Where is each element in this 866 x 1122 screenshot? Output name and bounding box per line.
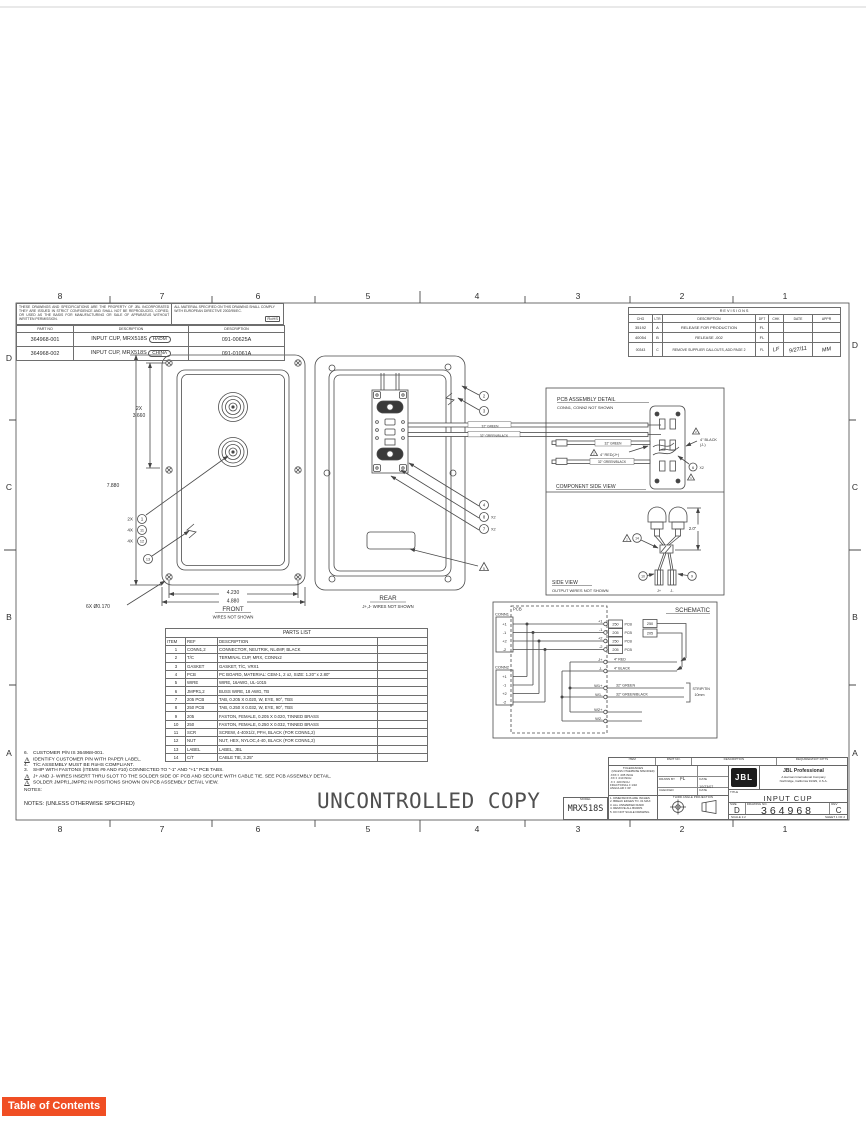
speakon-connector-front-1 bbox=[219, 393, 248, 422]
svg-text:32" GREEN: 32" GREEN bbox=[605, 441, 623, 445]
svg-text:PCB: PCB bbox=[625, 623, 633, 627]
signature: LF bbox=[772, 346, 779, 353]
wire-greenblack-label: 32" GREEN/BLACK bbox=[480, 434, 509, 438]
table-of-contents-link[interactable]: Table of Contents bbox=[2, 1097, 106, 1116]
hole-note: 6X Ø0.170 bbox=[86, 604, 110, 610]
balloon-cable-tie: 14 bbox=[635, 537, 639, 541]
standard-notes-box: 1. DIMENSIONS ARE INCHES 2. BREAK EDGES … bbox=[608, 795, 658, 820]
svg-text:10mm: 10mm bbox=[695, 693, 705, 697]
table-row: 00343 C REMOVE SUPPLIER CALLOUTS, ADD PA… bbox=[629, 343, 841, 357]
jbl-label-outline bbox=[367, 532, 415, 549]
svg-text:(J-): (J-) bbox=[700, 443, 706, 447]
pcb-assembly-detail: PCB ASSEMBLY DETAIL CONN1, CONN2 NOT SHO… bbox=[546, 388, 724, 595]
svg-text:B: B bbox=[6, 612, 12, 622]
model-number: MRX518S bbox=[564, 804, 607, 814]
jumper-wires bbox=[653, 443, 679, 455]
table-row: 11SCRSCREW, 4-40X1/2, PFH, BLACK (FOR CO… bbox=[166, 728, 428, 736]
note-1: SOLDER JMPR1,JMPR2 IN POSITIONS SHOWN ON… bbox=[33, 780, 219, 785]
svg-text:W2-: W2- bbox=[595, 716, 603, 721]
balloon-250-faston: 10 bbox=[641, 575, 645, 579]
table-row: 2T/CTERMINAL CUP, MRX, CONNx2 bbox=[166, 654, 428, 662]
side-view-caption: SIDE VIEW bbox=[552, 580, 578, 586]
black-wire-label: 4" BLACK bbox=[700, 438, 717, 442]
jbl-logo: JBL bbox=[731, 768, 757, 787]
svg-text:X2: X2 bbox=[700, 466, 704, 470]
part-number-table: PART NO DESCRIPTION DESCRIPTION 364968-0… bbox=[16, 325, 285, 361]
rohs-badge: RoHS bbox=[265, 316, 280, 322]
balloon-tc: 2 bbox=[483, 394, 486, 399]
svg-text:2: 2 bbox=[593, 452, 595, 456]
svg-text:-1: -1 bbox=[503, 630, 507, 635]
svg-text:J+: J+ bbox=[598, 657, 603, 662]
svg-text:A: A bbox=[852, 748, 858, 758]
svg-text:7: 7 bbox=[160, 291, 165, 301]
strip-tin-note: STRIP/TIN bbox=[693, 687, 711, 691]
pcb-detail-title: PCB ASSEMBLY DETAIL bbox=[557, 397, 616, 403]
wire-green-label: 32" GREEN bbox=[482, 424, 500, 428]
svg-text:7: 7 bbox=[160, 824, 165, 834]
table-row: 6JMPR1,2BUSS WIRE, 18 AWG, TB bbox=[166, 687, 428, 695]
svg-text:8: 8 bbox=[58, 291, 63, 301]
svg-text:-2: -2 bbox=[503, 647, 507, 652]
balloon-screw: 11 bbox=[140, 529, 144, 533]
svg-text:2X: 2X bbox=[136, 406, 143, 412]
svg-text:X2: X2 bbox=[491, 516, 496, 520]
drawn-by-signature: FL bbox=[679, 775, 685, 781]
table-row: 364968-002 INPUT CUP, MRX518S CHINA 091-… bbox=[17, 347, 285, 361]
svg-text:4X: 4X bbox=[127, 539, 133, 544]
conn1-label: CONN1 bbox=[495, 612, 510, 617]
note-3: SHIP WITH FASTONS (ITEMS #9 AND #10) CON… bbox=[33, 768, 224, 773]
signature: MM bbox=[821, 346, 831, 354]
svg-text:5: 5 bbox=[366, 291, 371, 301]
svg-text:J+: J+ bbox=[657, 589, 662, 593]
svg-text:4: 4 bbox=[475, 291, 480, 301]
table-row: 10250FASTON, FEMALE, 0.250 X 0.032, TINN… bbox=[166, 720, 428, 728]
jbl-logo-box: JBL bbox=[728, 765, 760, 790]
rear-caption: REAR bbox=[379, 595, 397, 602]
svg-text:3: 3 bbox=[576, 824, 581, 834]
loose-250-faston: 250 bbox=[647, 622, 653, 626]
component-side-caption: COMPONENT SIDE VIEW bbox=[556, 484, 616, 490]
note1-triangle: 1 bbox=[24, 780, 33, 786]
far-side-squiggle bbox=[446, 393, 454, 405]
svg-text:8: 8 bbox=[58, 824, 63, 834]
table-row: 9205FASTON, FEMALE, 0.205 X 0.020, TINNE… bbox=[166, 712, 428, 720]
parts-list: PARTS LIST ITEM REF DESCRIPTION 1CONN1,2… bbox=[165, 628, 427, 762]
svg-text:-1: -1 bbox=[599, 627, 603, 632]
schematic: SCHEMATIC PCB CONN1 +1 -1 +2 -2 CONN2 +1… bbox=[493, 602, 717, 738]
note-4: T/C ASSEMBLY MUST BE RoHS COMPLIANT. bbox=[33, 763, 134, 768]
balloon-nut: 12 bbox=[140, 540, 144, 544]
svg-text:+1: +1 bbox=[502, 622, 507, 627]
svg-text:4X: 4X bbox=[127, 528, 133, 533]
dim-4230: 4.230 bbox=[227, 590, 240, 596]
svg-text:1: 1 bbox=[783, 291, 788, 301]
third-angle-box: THIRD ANGLE PROJECTION bbox=[657, 795, 729, 820]
svg-text:2: 2 bbox=[626, 538, 628, 542]
schematic-title: SCHEMATIC bbox=[675, 608, 711, 614]
svg-text:32" GREEN/BLACK: 32" GREEN/BLACK bbox=[598, 460, 627, 464]
qty-conn: 2X bbox=[127, 517, 133, 522]
svg-text:J+,J- WIRES NOT SHOWN: J+,J- WIRES NOT SHOWN bbox=[362, 604, 413, 609]
drawing-linework: 87 65 43 21 87 65 43 21 DC BA DC BA bbox=[0, 0, 866, 1122]
side-view: 2.0" 2 14 10 9 J+ J- SIDE VIEW OUTPUT WI… bbox=[552, 507, 701, 593]
svg-text:X2: X2 bbox=[491, 528, 496, 532]
front-caption: FRONT bbox=[222, 606, 244, 613]
signature-grid: DRAWN BY FL DATE 10/23/07 CHECKED DATE A… bbox=[657, 765, 729, 796]
svg-text:4: 4 bbox=[475, 824, 480, 834]
svg-text:+1: +1 bbox=[598, 619, 603, 624]
svg-text:WIRES NOT SHOWN: WIRES NOT SHOWN bbox=[213, 615, 254, 620]
svg-text:W1+: W1+ bbox=[594, 683, 603, 688]
note-5: IDENTIFY CUSTOMER P/N WITH PAPER LABEL. bbox=[33, 757, 141, 762]
dim-3660: 3.660 bbox=[133, 413, 146, 419]
svg-text:250: 250 bbox=[612, 623, 618, 627]
tolerances-box: TOLERANCES (UNLESS OTHERWISE SPECIFIED) … bbox=[608, 765, 658, 796]
material-notice: ALL MATERIAL SPECIFIED ON THIS DRAWING S… bbox=[172, 303, 284, 325]
svg-text:PCB: PCB bbox=[513, 607, 522, 612]
table-row: 5WIREWIRE, 16AWG, UL-1015 bbox=[166, 679, 428, 687]
svg-text:D: D bbox=[852, 340, 858, 350]
table-row: 12NUTNUT, HEX, NYLOC,4-40, BLACK (FOR CO… bbox=[166, 737, 428, 745]
table-row: 1CONN1,2CONNECTOR, NEUTRIK, NL4MP, BLACK bbox=[166, 646, 428, 654]
table-row: 4PCBPC BOARD, MATERIAL: CEM-1, 2 oz, SIZ… bbox=[166, 670, 428, 678]
dim-4880: 4.880 bbox=[227, 598, 240, 604]
svg-text:4" RED: 4" RED bbox=[614, 658, 626, 662]
balloon-jumper: 6 bbox=[692, 466, 694, 470]
model-box: MODEL MRX518S bbox=[563, 797, 608, 820]
svg-text:5: 5 bbox=[483, 567, 485, 571]
svg-text:6: 6 bbox=[256, 291, 261, 301]
balloon-205pcb: 7 bbox=[483, 527, 486, 532]
svg-text:J-: J- bbox=[599, 666, 603, 671]
svg-text:C: C bbox=[6, 482, 12, 492]
svg-text:B: B bbox=[852, 612, 858, 622]
pdf-page: { "page": { "toc_label": "Table of Conte… bbox=[0, 0, 866, 1122]
table-row: 35192 A RELEASE FOR PRODUCTION FL bbox=[629, 323, 841, 333]
svg-text:3: 3 bbox=[576, 291, 581, 301]
svg-text:2: 2 bbox=[680, 291, 685, 301]
note-2: J+ AND J- WIRES INSERT THRU SLOT TO THE … bbox=[33, 774, 331, 779]
svg-text:PCB: PCB bbox=[625, 631, 633, 635]
svg-text:OUTPUT WIRES NOT SHOWN: OUTPUT WIRES NOT SHOWN bbox=[552, 588, 609, 593]
svg-text:W1-: W1- bbox=[595, 692, 603, 697]
svg-text:5: 5 bbox=[366, 824, 371, 834]
balloon-conn: 1 bbox=[141, 517, 144, 522]
svg-text:PCB: PCB bbox=[625, 640, 633, 644]
table-row: 40054 B RELEASE -002 FL bbox=[629, 333, 841, 343]
balloon-250pcb: 8 bbox=[483, 515, 486, 520]
dim-2in: 2.0" bbox=[689, 526, 697, 531]
origin-oval: CHINA bbox=[148, 350, 171, 357]
svg-text:4" BLACK: 4" BLACK bbox=[614, 667, 631, 671]
note5-triangle: 5 bbox=[24, 757, 33, 763]
svg-text:205: 205 bbox=[612, 631, 618, 635]
rear-view: 2 3 4 8 X2 7 X2 5 32" GREEN 32" GREEN/BL… bbox=[315, 356, 661, 609]
scale-sheet-strip: SCALE 1:2 SHEET 1 OF 2 bbox=[728, 814, 848, 820]
balloon-205-faston: 9 bbox=[691, 575, 693, 579]
svg-text:J-: J- bbox=[670, 589, 674, 593]
balloon-label: 13 bbox=[146, 558, 150, 562]
origin-oval: HADM bbox=[149, 336, 171, 343]
table-row: 364968-001 INPUT CUP, MRX518S HADM 091-0… bbox=[17, 333, 285, 347]
svg-text:205: 205 bbox=[612, 648, 618, 652]
loose-205-faston: 205 bbox=[647, 632, 653, 636]
dim-7880: 7.880 bbox=[107, 483, 120, 489]
signature-date: 9/27/11 bbox=[789, 345, 808, 354]
svg-text:D: D bbox=[6, 353, 12, 363]
title-block: ITEM PART NO. DESCRIPTION REQUIRED/NOT F… bbox=[563, 757, 848, 820]
speakon-connector-front-2 bbox=[219, 438, 248, 467]
svg-text:250: 250 bbox=[612, 640, 618, 644]
svg-text:-1: -1 bbox=[503, 683, 507, 688]
rear-pcb bbox=[372, 373, 408, 473]
svg-text:6: 6 bbox=[256, 824, 261, 834]
balloon-pcb: 4 bbox=[483, 503, 486, 508]
svg-text:1: 1 bbox=[783, 824, 788, 834]
third-angle-projection-icon bbox=[658, 799, 728, 815]
svg-text:CONN1, CONN2 NOT SHOWN: CONN1, CONN2 NOT SHOWN bbox=[557, 405, 613, 410]
svg-text:+2: +2 bbox=[502, 639, 507, 644]
svg-text:+2: +2 bbox=[598, 636, 603, 641]
conn2-label: CONN2 bbox=[495, 665, 510, 670]
svg-text:PCB: PCB bbox=[625, 648, 633, 652]
part-id-block: THESE DRAWINGS AND SPECIFICATIONS ARE TH… bbox=[16, 303, 284, 361]
table-row: 8250 PCBTAB, 0.250 X 0.032, W, EYE, 90°,… bbox=[166, 704, 428, 712]
svg-text:32" GREEN/BLACK: 32" GREEN/BLACK bbox=[616, 693, 648, 697]
scale-value: SCALE 1:2 bbox=[731, 815, 746, 819]
table-row: 7205 PCBTAB, 0.205 X 0.020, W, EYE, 90°,… bbox=[166, 695, 428, 703]
title-box: TITLE INPUT CUP bbox=[728, 789, 848, 803]
svg-text:C: C bbox=[852, 482, 858, 492]
svg-text:+2: +2 bbox=[502, 691, 507, 696]
svg-text:-2: -2 bbox=[503, 700, 507, 705]
balloon-gasket: 3 bbox=[483, 409, 486, 414]
uncontrolled-copy-watermark: UNCONTROLLED COPY bbox=[317, 789, 540, 813]
svg-text:W2+: W2+ bbox=[594, 707, 603, 712]
property-notice: THESE DRAWINGS AND SPECIFICATIONS ARE TH… bbox=[16, 303, 172, 325]
front-view: 2X 1 4X 11 4X 12 13 2X 3.660 7.880 4.230… bbox=[86, 355, 305, 620]
note-6: CUSTOMER P/N IS 364968-001. bbox=[33, 751, 104, 756]
sheet-number: SHEET 1 OF 2 bbox=[825, 815, 845, 819]
svg-text:A: A bbox=[6, 748, 12, 758]
svg-text:-2: -2 bbox=[599, 644, 603, 649]
company-box: JBL Professional A Harman International … bbox=[759, 765, 848, 790]
red-wire-label: 4" RED(J+) bbox=[600, 453, 620, 457]
table-row: 3GASKETGASKET, T/C, VRX1 bbox=[166, 662, 428, 670]
revisions-block: REVISIONS CHG LTR DESCRIPTION DFT CHK DA… bbox=[628, 307, 840, 357]
svg-text:2: 2 bbox=[680, 824, 685, 834]
company-name: JBL Professional bbox=[760, 768, 847, 774]
svg-text:+1: +1 bbox=[502, 674, 507, 679]
svg-text:32" GREEN: 32" GREEN bbox=[616, 684, 635, 688]
